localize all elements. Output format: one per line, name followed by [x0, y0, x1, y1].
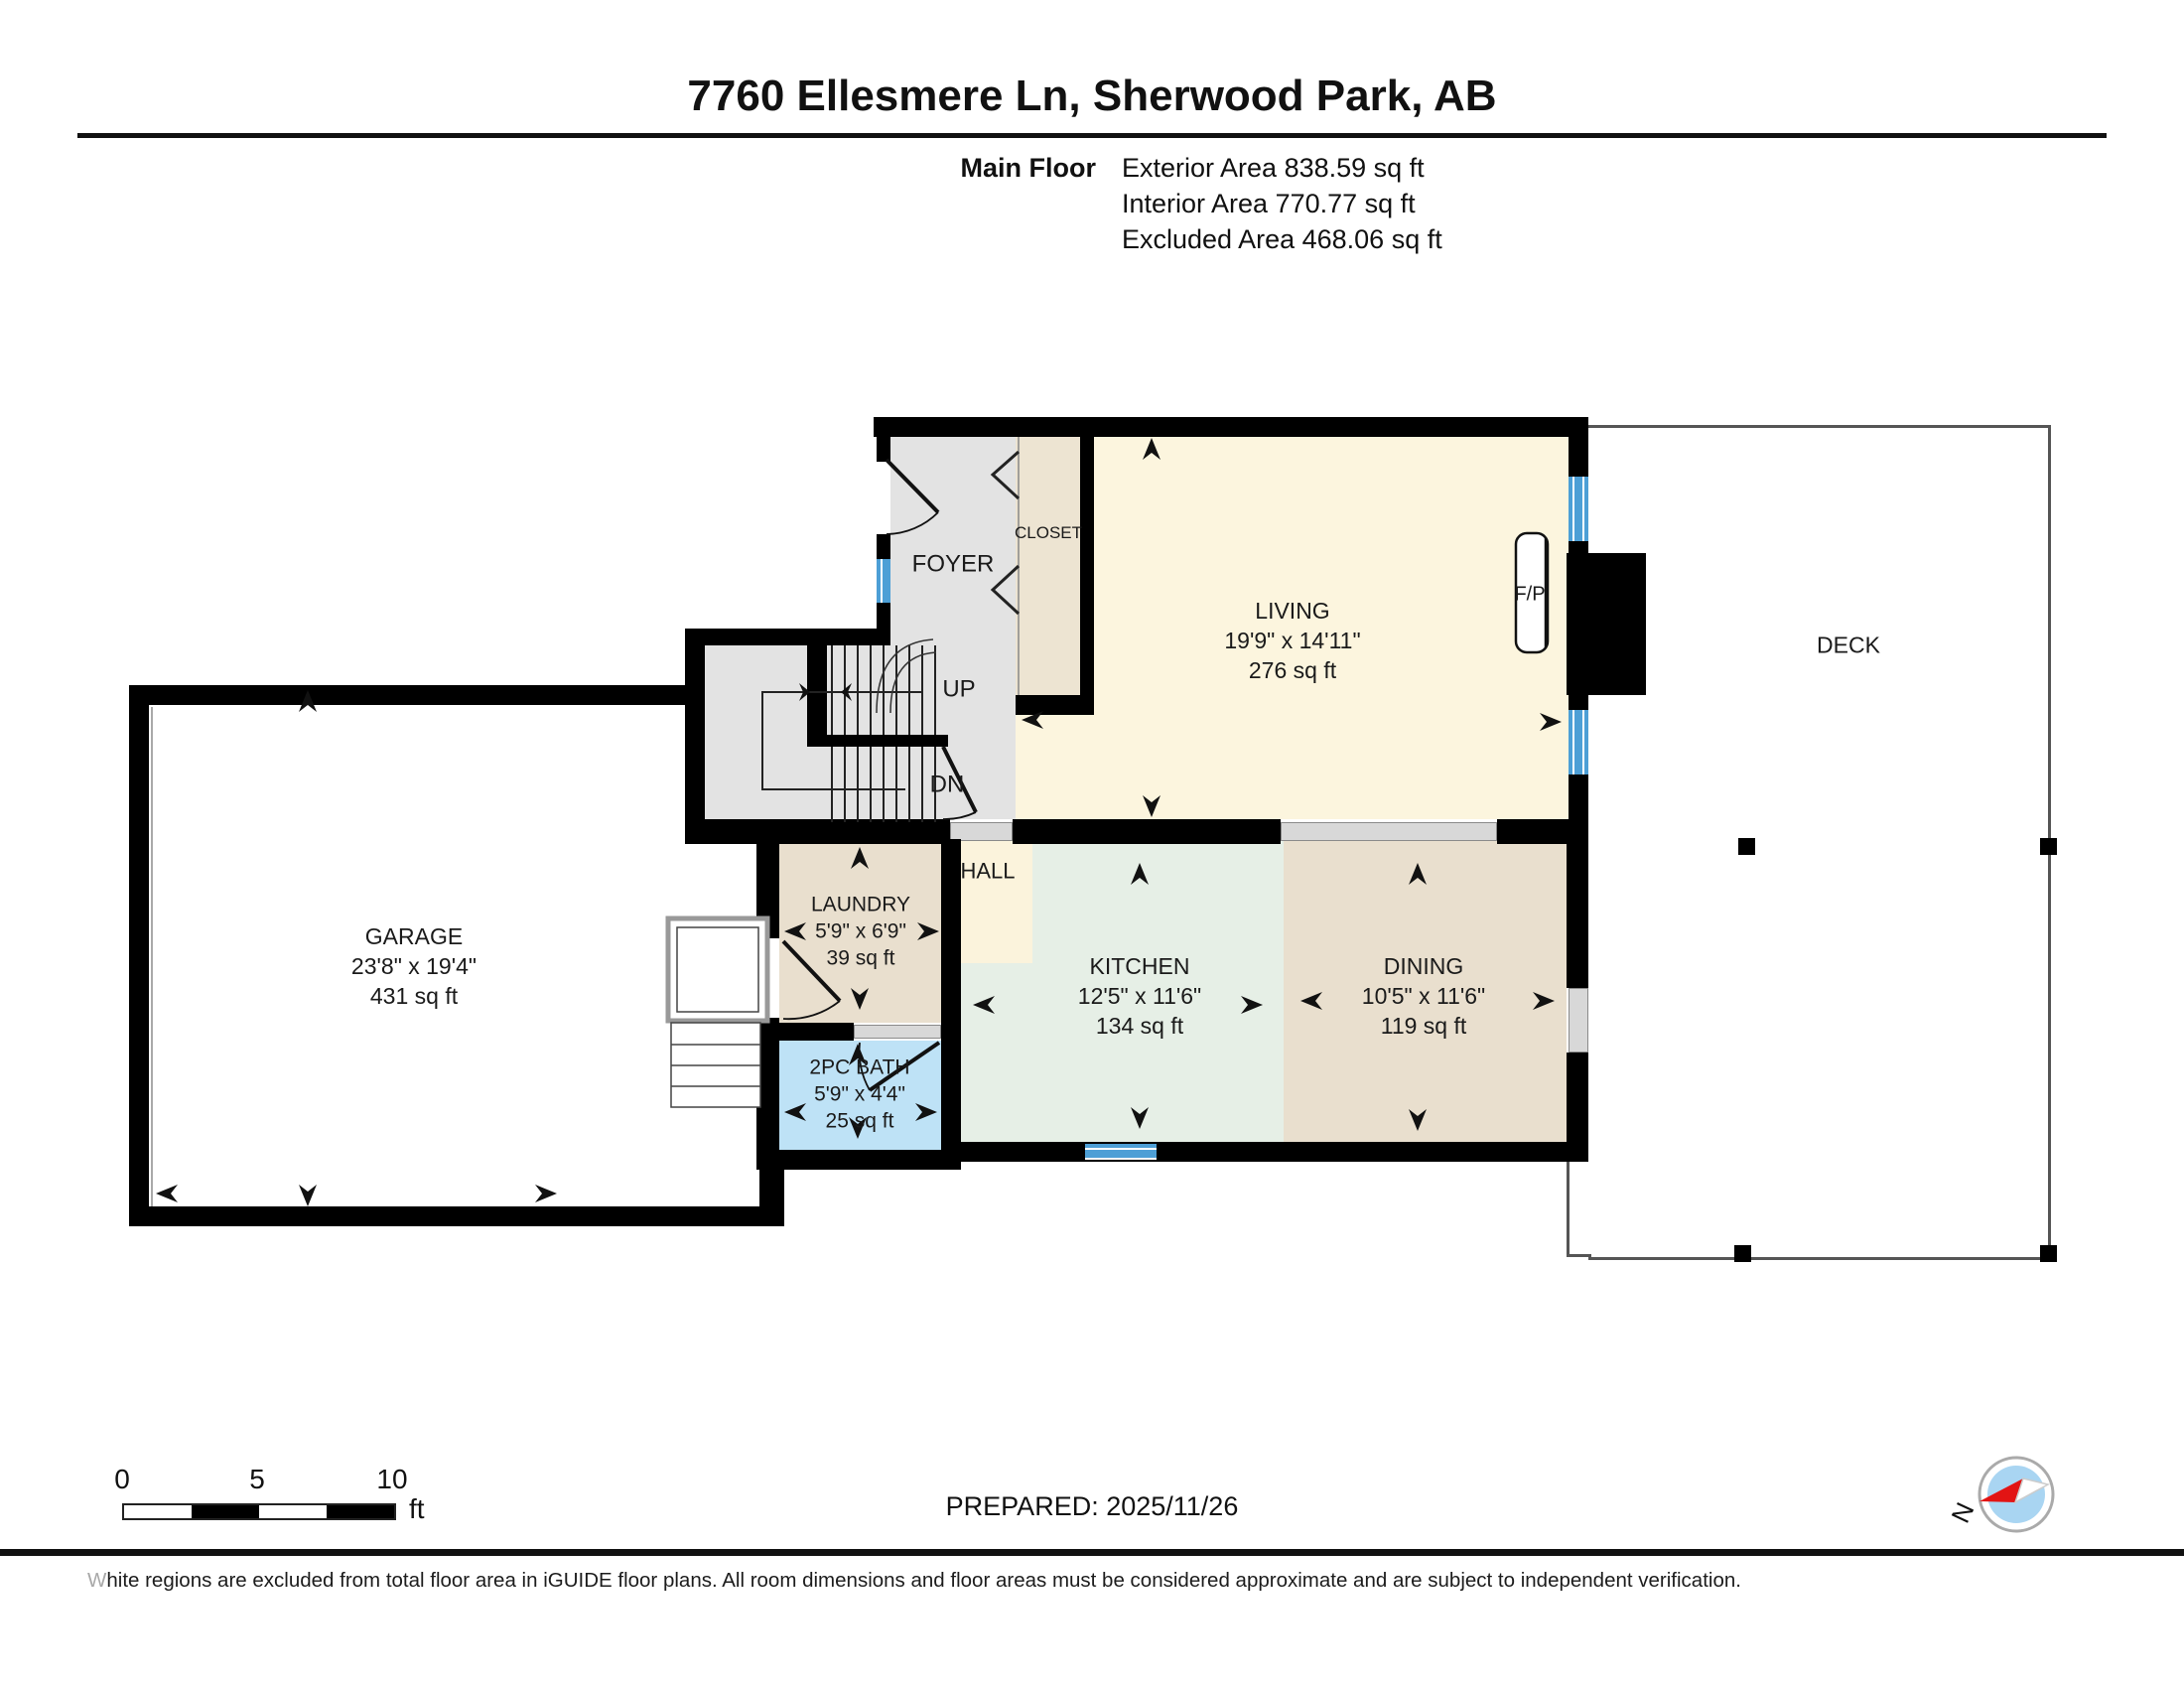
floorplan-annotations	[0, 0, 2184, 1688]
room-area: 431 sq ft	[351, 981, 477, 1011]
room-dims: 5'9" x 6'9"	[811, 918, 910, 945]
room-name: KITCHEN	[1078, 951, 1201, 981]
scale-unit: ft	[409, 1493, 425, 1525]
kitchen-label: KITCHEN 12'5" x 11'6" 134 sq ft	[1078, 951, 1201, 1041]
prepared-date: PREPARED: 2025/11/26	[946, 1491, 1239, 1522]
scale-tick-10: 10	[376, 1464, 407, 1495]
exterior-steps-icon	[668, 918, 767, 1107]
scale-tick-5: 5	[249, 1464, 265, 1495]
garage-label: GARAGE 23'8" x 19'4" 431 sq ft	[351, 921, 477, 1011]
room-name: GARAGE	[351, 921, 477, 951]
stat-interior-area: Interior Area 770.77 sq ft	[1122, 189, 1416, 219]
laundry-label: LAUNDRY 5'9" x 6'9" 39 sq ft	[811, 892, 910, 972]
stair-path	[762, 692, 923, 789]
down-label: DN	[930, 771, 965, 799]
page-title: 7760 Ellesmere Ln, Sherwood Park, AB	[0, 71, 2184, 121]
stair-curve	[877, 639, 936, 713]
bath-label: 2PC BATH 5'9" x 4'4" 25 sq ft	[809, 1055, 909, 1135]
room-name: LAUNDRY	[811, 892, 910, 918]
scale-tick-0: 0	[114, 1464, 130, 1495]
hall-label: HALL	[960, 857, 1015, 886]
dining-label: DINING 10'5" x 11'6" 119 sq ft	[1362, 951, 1485, 1041]
living-label: LIVING 19'9" x 14'11" 276 sq ft	[1224, 596, 1360, 685]
room-area: 134 sq ft	[1078, 1011, 1201, 1041]
up-label: UP	[942, 675, 975, 704]
room-name: DINING	[1362, 951, 1485, 981]
room-dims: 10'5" x 11'6"	[1362, 981, 1485, 1011]
scale-bar	[122, 1503, 396, 1520]
room-area: 25 sq ft	[809, 1108, 909, 1135]
footer-divider	[0, 1549, 2184, 1556]
room-area: 119 sq ft	[1362, 1011, 1485, 1041]
room-name: 2PC BATH	[809, 1055, 909, 1081]
room-dims: 12'5" x 11'6"	[1078, 981, 1201, 1011]
room-dims: 19'9" x 14'11"	[1224, 626, 1360, 655]
closet-label: CLOSET	[1015, 523, 1082, 543]
disclaimer-text: White regions are excluded from total fl…	[87, 1569, 1741, 1593]
fireplace-label: F/P	[1514, 581, 1545, 610]
deck-label: DECK	[1817, 632, 1880, 660]
title-divider	[77, 133, 2107, 138]
floorplan-page: 7760 Ellesmere Ln, Sherwood Park, AB Mai…	[0, 0, 2184, 1688]
room-area: 276 sq ft	[1224, 655, 1360, 685]
room-area: 39 sq ft	[811, 945, 910, 972]
stat-excluded-area: Excluded Area 468.06 sq ft	[1122, 224, 1442, 255]
room-name: LIVING	[1224, 596, 1360, 626]
room-dims: 5'9" x 4'4"	[809, 1081, 909, 1108]
floor-name: Main Floor	[814, 153, 1096, 184]
compass-icon	[1979, 1458, 2053, 1531]
foyer-label: FOYER	[912, 550, 995, 579]
stat-exterior-area: Exterior Area 838.59 sq ft	[1122, 153, 1425, 184]
closet-bifold-icon	[993, 437, 1019, 695]
entry-door-icon	[887, 460, 938, 534]
room-dims: 23'8" x 19'4"	[351, 951, 477, 981]
